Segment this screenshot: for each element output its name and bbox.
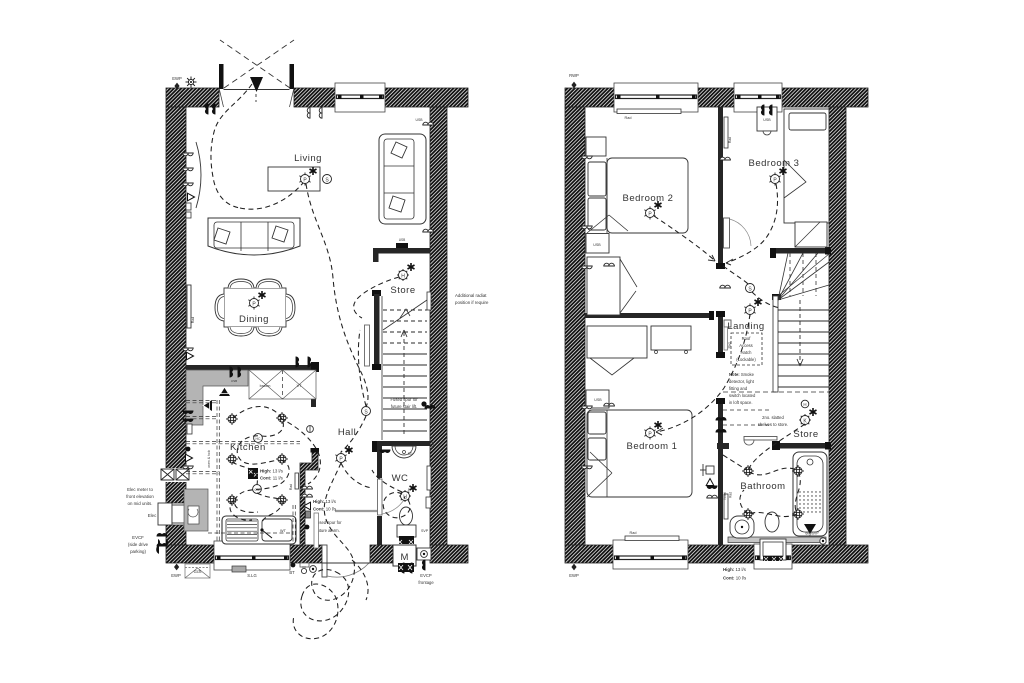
svg-text:EWP: EWP [171, 573, 181, 578]
svg-text:Roof: Roof [742, 336, 752, 341]
svg-text:USB: USB [594, 398, 602, 402]
svg-text:BT: BT [289, 570, 295, 575]
svg-text:EWP: EWP [172, 76, 182, 81]
svg-text:USB: USB [399, 238, 406, 242]
svg-text:Bedroom 2: Bedroom 2 [623, 193, 674, 204]
svg-text:H: H [803, 402, 806, 407]
svg-text:Store: Store [793, 429, 818, 440]
svg-text:S.LG: S.LG [247, 573, 257, 578]
svg-text:Hatch: Hatch [741, 350, 753, 355]
svg-text:2no. slatted: 2no. slatted [762, 415, 784, 420]
svg-text:EVCP: EVCP [420, 573, 432, 578]
svg-text:Fused spur for: Fused spur for [391, 397, 419, 402]
svg-text:Rad: Rad [431, 442, 435, 448]
svg-text:Rad: Rad [729, 492, 733, 498]
svg-text:Cont: 11 l/s: Cont: 11 l/s [260, 476, 284, 481]
svg-text:CN: CN [255, 488, 260, 492]
svg-text:Store: Store [390, 285, 415, 296]
svg-text:Rad.: Rad. [728, 342, 732, 349]
svg-text:M: M [401, 552, 409, 563]
svg-text:High: 13 l/s: High: 13 l/s [260, 469, 284, 474]
svg-text:Gch.: Gch. [194, 569, 203, 574]
svg-text:oven & hob: oven & hob [207, 450, 211, 467]
svg-text:Dining: Dining [239, 314, 269, 325]
svg-text:in loft space.: in loft space. [729, 400, 753, 405]
svg-text:future alarm.: future alarm. [316, 528, 340, 533]
svg-text:broom: broom [260, 384, 271, 388]
svg-text:parking): parking) [130, 549, 146, 554]
svg-text:future stair lift.: future stair lift. [391, 404, 417, 409]
svg-text:on mid units.: on mid units. [128, 501, 153, 506]
svg-text:VT: VT [297, 384, 303, 388]
svg-text:Elec: Elec [148, 513, 157, 518]
svg-text:Kitchen: Kitchen [230, 442, 266, 453]
svg-text:Towel: Towel [723, 492, 727, 500]
svg-text:HC: HC [256, 437, 261, 441]
svg-text:USB: USB [416, 118, 424, 122]
svg-text:Rad: Rad [728, 137, 732, 143]
svg-text:Access: Access [739, 343, 753, 348]
svg-text:SVP: SVP [421, 529, 429, 533]
svg-text:frontage: frontage [418, 580, 434, 585]
svg-text:Rad: Rad [289, 484, 293, 490]
svg-text:USB: USB [763, 118, 771, 122]
svg-text:6kg/SVP: 6kg/SVP [805, 532, 819, 536]
svg-text:front elevation: front elevation [126, 494, 154, 499]
svg-text:switch located: switch located [729, 393, 756, 398]
svg-text:Rad: Rad [191, 317, 195, 323]
svg-text:Hall: Hall [338, 427, 356, 438]
svg-text:(side drive: (side drive [128, 542, 149, 547]
svg-text:Bedroom 1: Bedroom 1 [627, 441, 678, 452]
svg-text:Landing: Landing [727, 321, 764, 332]
svg-text:Cont: 10 l/s: Cont: 10 l/s [723, 576, 747, 581]
svg-text:H: H [401, 273, 405, 279]
svg-text:detector, light: detector, light [729, 379, 755, 384]
svg-text:shelves to store.: shelves to store. [758, 422, 789, 427]
svg-text:USB: USB [231, 379, 237, 383]
svg-text:WC: WC [392, 473, 409, 484]
svg-text:fitting and: fitting and [729, 386, 748, 391]
svg-text:Rad: Rad [431, 300, 435, 306]
svg-text:RWP: RWP [569, 73, 579, 78]
svg-text:Living: Living [294, 153, 322, 164]
svg-text:High: 13 l/s: High: 13 l/s [723, 567, 747, 572]
svg-text:EVCF: EVCF [132, 535, 144, 540]
svg-text:Bathroom: Bathroom [740, 481, 785, 492]
svg-text:Elec meter to: Elec meter to [127, 487, 153, 492]
svg-text:SO: SO [408, 452, 413, 456]
svg-text:Bedroom 3: Bedroom 3 [749, 158, 800, 169]
svg-text:WT: WT [280, 529, 287, 533]
svg-text:Rad: Rad [625, 116, 632, 120]
svg-text:EWP: EWP [569, 573, 579, 578]
svg-text:position if require: position if require [455, 300, 489, 305]
svg-text:Additional radiat: Additional radiat [455, 293, 487, 298]
svg-text:Cont: 10 l/s: Cont: 10 l/s [313, 507, 337, 512]
svg-text:USB: USB [593, 243, 601, 247]
svg-text:Rad: Rad [630, 531, 637, 535]
svg-text:H: H [403, 494, 407, 500]
